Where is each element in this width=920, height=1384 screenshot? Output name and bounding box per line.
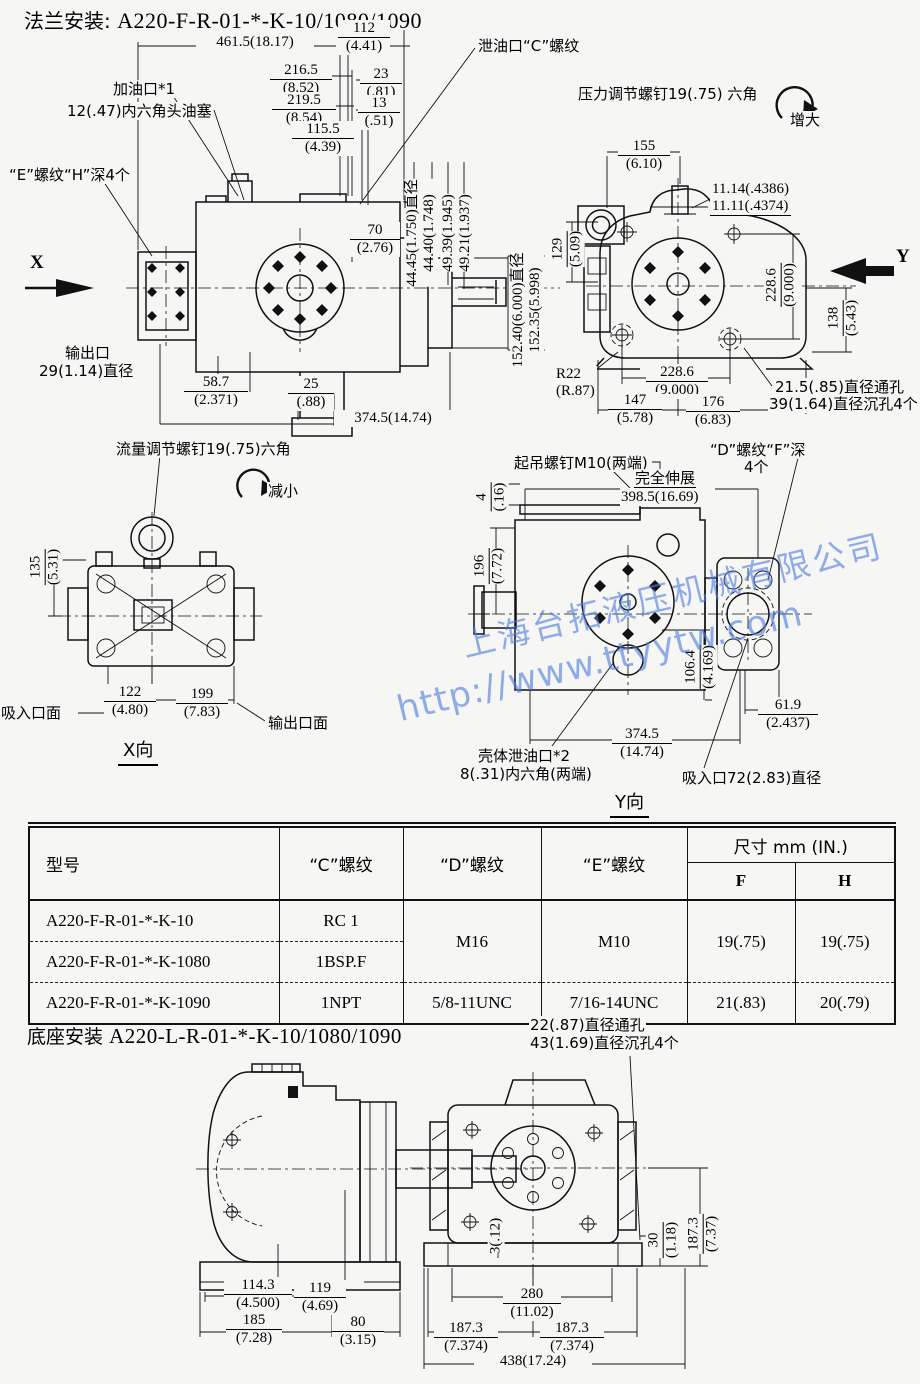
- dim-key-height: 49.39(1.945)49.21(1.937): [440, 194, 474, 272]
- dim-pilot-diameter: 152.40(6.000)直径152.35(5.998): [510, 253, 544, 368]
- flange-title-prefix: 法兰安装:: [24, 9, 111, 33]
- dim-129: 129(5.09): [550, 231, 585, 267]
- dim-438: 438(17.24): [474, 1353, 592, 1370]
- table-row-model: A220-F-R-01-*-K-1080: [29, 942, 279, 983]
- table-merged-d: M16: [403, 900, 541, 983]
- dim-119: 119(4.69): [294, 1280, 346, 1315]
- dim-122: 122(4.80): [104, 684, 156, 719]
- dim-overall-length: 461.5(18.17): [196, 34, 314, 51]
- base-counterbore-label: 43(1.69)直径沉孔4个: [529, 1034, 680, 1052]
- table-merged-e: M10: [541, 900, 687, 983]
- dim-374-5-yview: 374.5(14.74): [612, 726, 672, 761]
- increase-label: 增大: [789, 111, 821, 129]
- table-row-model: A220-F-R-01-*-K-1090: [29, 983, 279, 1025]
- x-axis-letter: X: [30, 252, 44, 274]
- table-row-c: RC 1: [279, 900, 403, 942]
- dim-shaft-diameter: 44.45(1.750)直径44.40(1.748): [404, 179, 438, 287]
- fill-port-label: 加油口*1: [112, 80, 176, 98]
- plug-label: 12(.47)内六角头油塞: [66, 102, 213, 120]
- suction-face-label: 吸入口面: [0, 704, 62, 722]
- dim-147: 147(5.78): [608, 392, 662, 427]
- base-through-hole-label: 22(.87)直径通孔: [529, 1016, 646, 1034]
- lift-screw-label: 起吊螺钉M10(两端): [513, 454, 649, 472]
- x-direction-arrow: [25, 279, 94, 297]
- flow-screw-label: 流量调节螺钉19(.75)六角: [115, 440, 292, 458]
- dim-374-5-flange: 374.5(14.74): [334, 410, 452, 427]
- dim-70: 70(2.76): [350, 222, 400, 257]
- dim-13: 13(.51): [358, 95, 400, 130]
- dim-187-3-right: 187.3(7.374): [540, 1320, 604, 1355]
- outlet-label-line1: 输出口: [64, 344, 111, 362]
- dim-155: 155(6.10): [618, 138, 670, 173]
- dim-280: 280(11.02): [503, 1286, 561, 1321]
- dim-187-3-vertical: 187.3(7.37): [686, 1214, 721, 1254]
- d-thread-label-line1: “D”螺纹“F”深: [709, 441, 806, 459]
- dim-r22: R22(R.87): [554, 366, 597, 400]
- header-d-thread: “D”螺纹: [403, 827, 541, 900]
- table-row-d: 5/8-11UNC: [403, 983, 541, 1025]
- counterbore-label: 39(1.64)直径沉孔4个: [768, 395, 919, 413]
- y-face-dimension-lines: [566, 152, 852, 416]
- dim-61-9: 61.9(2.437): [758, 697, 818, 732]
- dim-196: 196(7.72): [472, 548, 507, 584]
- x-view-name: X向: [118, 736, 158, 766]
- base-side-view-drawing: [196, 1064, 532, 1290]
- dim-176: 176(6.83): [686, 394, 740, 429]
- y-direction-arrow: [830, 258, 894, 284]
- header-f: F: [687, 863, 795, 901]
- table-row-h: 20(.79): [795, 983, 895, 1025]
- header-e-thread: “E”螺纹: [541, 827, 687, 900]
- outlet-label-line2: 29(1.14)直径: [38, 362, 134, 380]
- dim-25: 25(.88): [288, 376, 334, 411]
- dim-4: 4(.16): [474, 483, 509, 512]
- table-merged-h: 19(.75): [795, 900, 895, 983]
- drain-port-label: 泄油口“C”螺纹: [477, 37, 580, 55]
- table-row-model: A220-F-R-01-*-K-10: [29, 900, 279, 942]
- dim-114-3: 114.3(4.500): [224, 1277, 292, 1312]
- pressure-screw-label: 压力调节螺钉19(.75) 六角: [577, 85, 758, 103]
- base-title-model: A220-L-R-01-*-K-10/1080/1090: [109, 1024, 402, 1048]
- dim-3: 3(.12): [488, 1218, 505, 1254]
- outlet-face-label: 输出口面: [267, 714, 329, 732]
- header-model: 型号: [29, 827, 279, 900]
- e-thread-label: “E”螺纹“H”深4个: [8, 166, 131, 184]
- dim-58-7: 58.7(2.371): [184, 374, 248, 409]
- y-view-name: Y向: [610, 788, 649, 818]
- table-row-c: 1NPT: [279, 983, 403, 1025]
- dim-185: 185(7.28): [226, 1312, 282, 1347]
- dim-30: 30(1.18): [646, 1222, 681, 1258]
- through-hole-label: 21.5(.85)直径通孔: [774, 378, 905, 396]
- dim-135: 135(5.31): [28, 549, 63, 585]
- dim-228-6-right: 228.6(9.000): [764, 263, 799, 307]
- x-view-drawing: [58, 512, 262, 690]
- table-merged-f: 19(.75): [687, 900, 795, 983]
- header-h: H: [795, 863, 895, 901]
- suction-port-label: 吸入口72(2.83)直径: [681, 769, 822, 787]
- header-c-thread: “C”螺纹: [279, 827, 403, 900]
- fully-extended-dim: 398.5(16.69): [620, 488, 700, 506]
- drawing-page: 法兰安装: A220-F-R-01-*-K-10/1080/1090 461.5…: [0, 0, 920, 1384]
- decrease-label: 减小: [267, 482, 299, 500]
- d-thread-label-line2: 4个: [743, 458, 770, 476]
- case-drain-label-line1: 壳体泄油口*2: [477, 747, 571, 765]
- base-face-view-drawing: [410, 1072, 660, 1302]
- spec-table: 型号 “C”螺纹 “D”螺纹 “E”螺纹 尺寸 mm (IN.) F H A22…: [28, 822, 896, 1025]
- fully-extended-label: 完全伸展: [634, 469, 696, 488]
- base-section-title: 底座安装 A220-L-R-01-*-K-10/1080/1090: [27, 1022, 402, 1049]
- dim-199: 199(7.83): [176, 686, 228, 721]
- base-title-prefix: 底座安装: [27, 1026, 103, 1048]
- y-axis-letter: Y: [896, 246, 910, 268]
- header-size: 尺寸 mm (IN.): [687, 827, 895, 863]
- dim-115-5: 115.5(4.39): [292, 121, 354, 156]
- dim-80: 80(3.15): [332, 1314, 384, 1349]
- table-row-c: 1BSP.F: [279, 942, 403, 983]
- dim-112: 112(4.41): [338, 20, 390, 55]
- table-row-f: 21(.83): [687, 983, 795, 1025]
- dim-138: 138(5.43): [826, 300, 861, 336]
- dim-stud-flats: 11.14(.4386)11.11(.4374): [710, 181, 791, 216]
- dim-187-3-left: 187.3(7.374): [434, 1320, 498, 1355]
- case-drain-label-line2: 8(.31)内六角(两端): [459, 765, 593, 783]
